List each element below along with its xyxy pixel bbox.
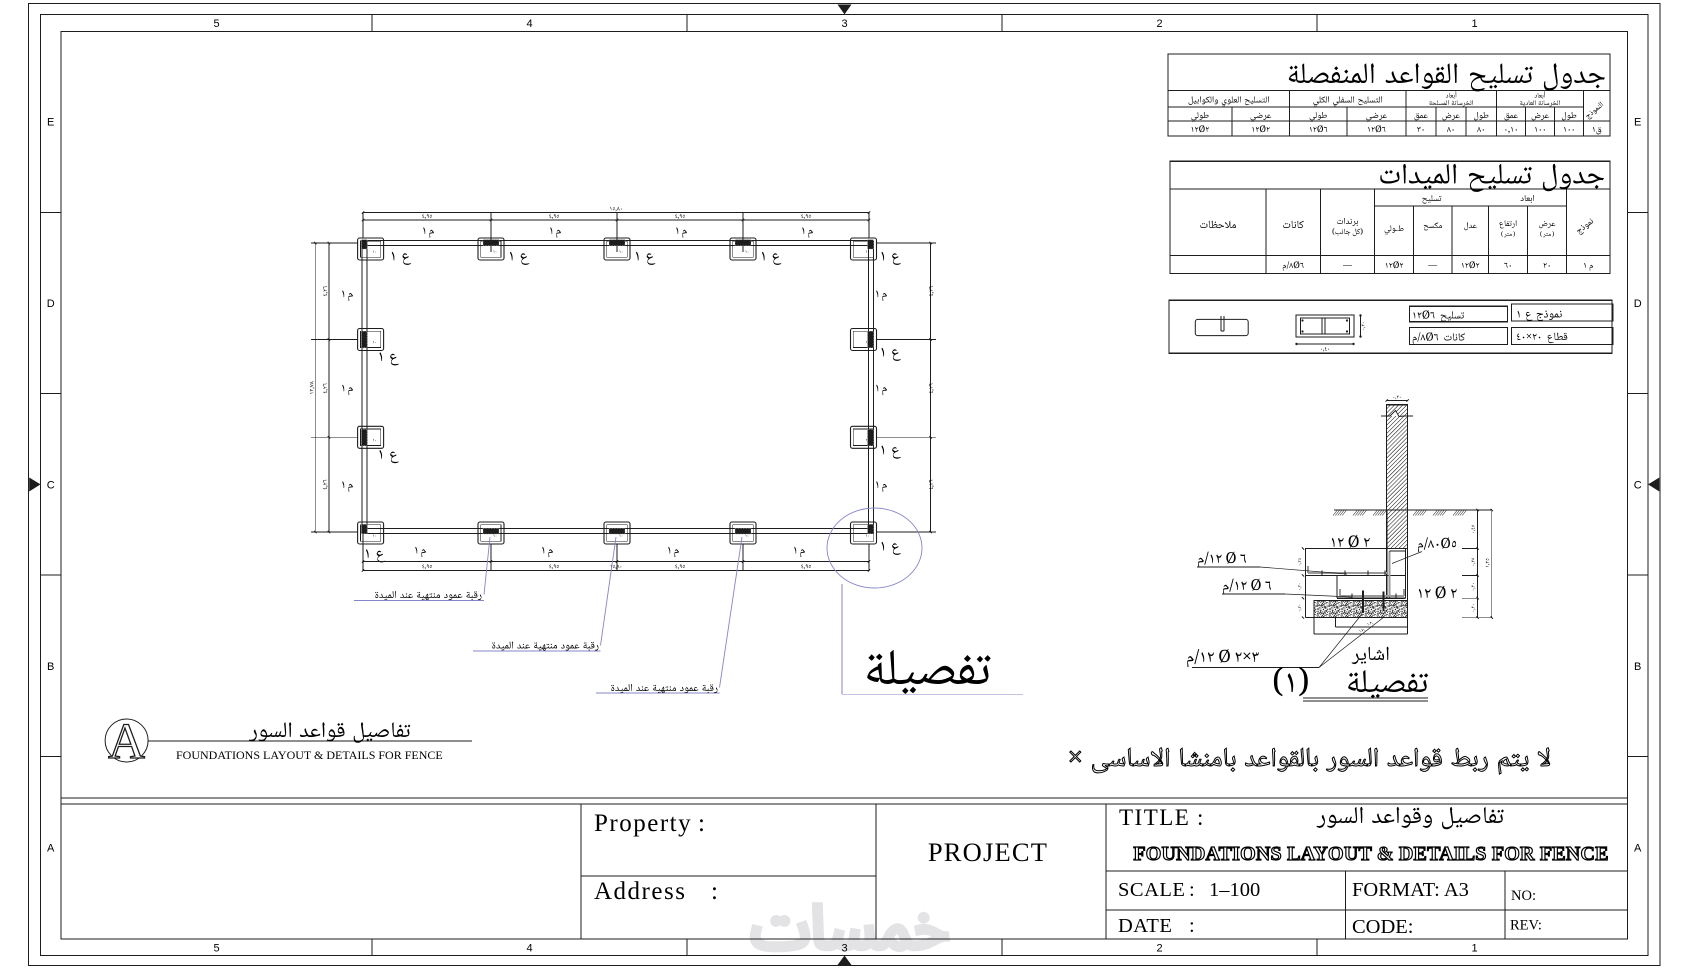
- svg-text:2: 2: [1156, 18, 1162, 30]
- svg-text:REV:: REV:: [1510, 918, 1542, 934]
- svg-text:FORMAT: A3: FORMAT: A3: [1352, 879, 1469, 901]
- svg-text:4: 4: [526, 18, 532, 30]
- svg-text:DATE: DATE: [1118, 915, 1172, 937]
- svg-text:Address: Address: [594, 878, 686, 905]
- svg-text:1–100: 1–100: [1209, 879, 1260, 901]
- svg-text:D: D: [1634, 298, 1642, 310]
- svg-text:SCALE: SCALE: [1118, 879, 1185, 901]
- svg-text:E: E: [47, 117, 54, 129]
- svg-text:5: 5: [213, 18, 219, 30]
- svg-text::: :: [1189, 879, 1195, 901]
- svg-text::: :: [1197, 805, 1203, 830]
- svg-text:TITLE: TITLE: [1119, 805, 1190, 830]
- svg-text:3: 3: [841, 943, 847, 955]
- svg-text:FOUNDATIONS LAYOUT & DETAIL: FOUNDATIONS LAYOUT & DETAILS FOR FENCE: [176, 748, 443, 762]
- svg-text:1: 1: [1471, 18, 1477, 30]
- svg-text:D: D: [47, 298, 55, 310]
- svg-text:CODE:: CODE:: [1352, 916, 1414, 938]
- svg-text:2: 2: [1156, 943, 1162, 955]
- svg-text::: :: [698, 810, 705, 837]
- svg-text:4: 4: [526, 943, 532, 955]
- svg-text:FOUNDATIONS LAYOUT & DETAILS F: FOUNDATIONS LAYOUT & DETAILS FOR FENCE: [1133, 843, 1608, 865]
- svg-text:A: A: [47, 843, 55, 855]
- svg-text:3: 3: [841, 18, 847, 30]
- svg-text:C: C: [47, 479, 55, 491]
- svg-text:5: 5: [213, 943, 219, 955]
- svg-text:B: B: [47, 661, 54, 673]
- svg-text:B: B: [1634, 661, 1641, 673]
- svg-text:A: A: [108, 714, 145, 770]
- svg-text:PROJECT: PROJECT: [928, 837, 1048, 867]
- svg-text:NO:: NO:: [1511, 888, 1536, 904]
- svg-text:E: E: [1634, 117, 1641, 129]
- svg-text:A: A: [1634, 843, 1642, 855]
- svg-text::: :: [711, 878, 718, 905]
- svg-text:C: C: [1634, 479, 1642, 491]
- svg-text:1: 1: [1471, 943, 1477, 955]
- svg-text::: :: [1189, 915, 1195, 937]
- svg-text:Property: Property: [594, 810, 692, 837]
